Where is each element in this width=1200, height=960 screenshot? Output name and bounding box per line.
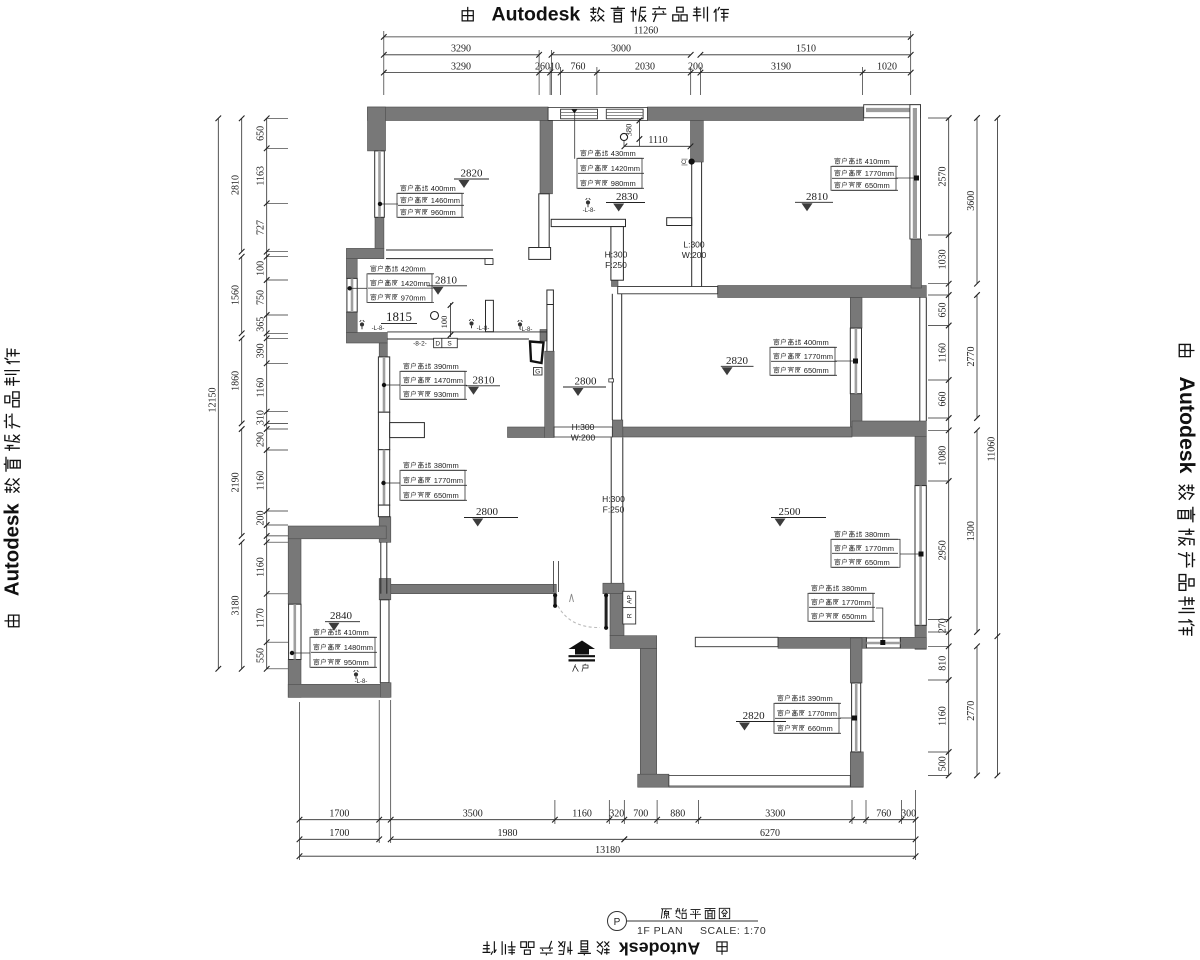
svg-text:390mm: 390mm <box>434 362 459 371</box>
svg-text:-8-2-: -8-2- <box>413 341 427 348</box>
svg-text:13180: 13180 <box>595 845 620 856</box>
svg-text:12150: 12150 <box>207 388 218 413</box>
svg-text:3190: 3190 <box>771 61 791 72</box>
svg-text:380mm: 380mm <box>434 461 459 470</box>
svg-text:-L-8-: -L-8- <box>477 326 490 332</box>
svg-text:11060: 11060 <box>986 437 997 462</box>
svg-text:1770mm: 1770mm <box>842 598 871 607</box>
svg-text:2950: 2950 <box>938 540 949 560</box>
svg-text:S: S <box>447 341 452 348</box>
svg-text:1300: 1300 <box>966 521 977 541</box>
svg-text:|C|: |C| <box>682 158 688 166</box>
svg-text:1770mm: 1770mm <box>434 476 463 485</box>
svg-text:400mm: 400mm <box>804 338 829 347</box>
svg-text:270: 270 <box>938 618 949 633</box>
svg-text:650: 650 <box>938 303 949 318</box>
svg-text:-L-8-: -L-8- <box>355 679 368 685</box>
svg-text:950mm: 950mm <box>344 658 369 667</box>
svg-text:390: 390 <box>256 343 267 358</box>
svg-text:1160: 1160 <box>256 471 267 491</box>
svg-text:760: 760 <box>876 808 891 819</box>
svg-text:2810: 2810 <box>806 191 829 203</box>
svg-text:1560: 1560 <box>231 285 242 305</box>
svg-text:750: 750 <box>256 290 267 305</box>
svg-text:AP: AP <box>627 595 634 604</box>
svg-text:660mm: 660mm <box>808 724 833 733</box>
svg-text:310: 310 <box>256 410 267 425</box>
svg-text:L:300: L:300 <box>683 240 705 250</box>
svg-text:3180: 3180 <box>231 596 242 616</box>
svg-text:2840: 2840 <box>330 610 353 622</box>
svg-text:365: 365 <box>256 317 267 332</box>
svg-text:390mm: 390mm <box>808 694 833 703</box>
svg-text:650mm: 650mm <box>804 366 829 375</box>
svg-text:2500: 2500 <box>779 506 802 518</box>
svg-text:3000: 3000 <box>611 44 631 55</box>
svg-text:290: 290 <box>256 432 267 447</box>
svg-text:1770mm: 1770mm <box>865 544 894 553</box>
svg-text:500: 500 <box>938 756 949 771</box>
svg-text:420mm: 420mm <box>401 265 426 274</box>
svg-text:880: 880 <box>670 808 685 819</box>
svg-text:1770mm: 1770mm <box>804 352 833 361</box>
svg-text:H:300: H:300 <box>605 250 628 260</box>
svg-text:1030: 1030 <box>938 249 949 269</box>
svg-text:1980: 1980 <box>498 828 518 839</box>
svg-text:2810: 2810 <box>231 175 242 195</box>
svg-text:W:200: W:200 <box>682 250 707 260</box>
svg-text:2820: 2820 <box>726 355 749 367</box>
svg-text:1770mm: 1770mm <box>808 709 837 718</box>
svg-text:-L-8-: -L-8- <box>520 327 533 333</box>
svg-text:3290: 3290 <box>451 61 471 72</box>
svg-text:1F PLAN: 1F PLAN <box>637 925 683 937</box>
svg-text:1163: 1163 <box>256 166 267 186</box>
svg-text:650mm: 650mm <box>842 612 867 621</box>
svg-text:2810: 2810 <box>435 274 458 286</box>
svg-text:3500: 3500 <box>463 808 483 819</box>
svg-text:1160: 1160 <box>572 808 592 819</box>
svg-text:-L-8-: -L-8- <box>372 326 385 332</box>
svg-text:410mm: 410mm <box>344 628 369 637</box>
svg-text:200: 200 <box>256 511 267 526</box>
svg-text:11260: 11260 <box>634 26 659 37</box>
svg-text:F:250: F:250 <box>603 505 625 515</box>
svg-text:970mm: 970mm <box>401 293 426 302</box>
svg-text:380mm: 380mm <box>842 584 867 593</box>
svg-text:2820: 2820 <box>743 710 766 722</box>
svg-text:Autodesk: Autodesk <box>492 3 581 25</box>
svg-text:2030: 2030 <box>635 61 655 72</box>
svg-text:2570: 2570 <box>938 167 949 187</box>
svg-text:F:250: F:250 <box>605 260 627 270</box>
svg-text:Autodesk: Autodesk <box>2 503 24 596</box>
svg-text:1420mm: 1420mm <box>401 279 430 288</box>
svg-text:550: 550 <box>256 648 267 663</box>
svg-text:Autodesk: Autodesk <box>1175 377 1199 474</box>
svg-text:1170: 1170 <box>256 608 267 628</box>
svg-text:2190: 2190 <box>231 472 242 492</box>
svg-text:1770mm: 1770mm <box>865 169 894 178</box>
svg-text:1110: 1110 <box>648 135 667 146</box>
svg-text:1460mm: 1460mm <box>431 196 460 205</box>
svg-text:960mm: 960mm <box>431 208 456 217</box>
svg-text:700: 700 <box>633 808 648 819</box>
svg-text:660: 660 <box>938 392 949 407</box>
svg-text:2810: 2810 <box>473 374 496 386</box>
svg-text:320: 320 <box>609 808 624 819</box>
svg-text:1160: 1160 <box>938 706 949 726</box>
svg-text:400mm: 400mm <box>431 184 456 193</box>
svg-text:H:300: H:300 <box>572 422 595 432</box>
svg-text:650mm: 650mm <box>865 558 890 567</box>
svg-text:1815: 1815 <box>386 309 412 324</box>
svg-text:3290: 3290 <box>451 44 471 55</box>
svg-text:H:300: H:300 <box>602 494 625 504</box>
svg-text:100: 100 <box>256 261 267 276</box>
svg-text:1510: 1510 <box>796 44 816 55</box>
svg-text:P: P <box>614 917 621 928</box>
svg-text:380mm: 380mm <box>865 530 890 539</box>
svg-text:2830: 2830 <box>616 191 639 203</box>
svg-text:2800: 2800 <box>476 506 499 518</box>
svg-text:R: R <box>627 613 634 618</box>
svg-text:650mm: 650mm <box>434 491 459 500</box>
svg-text:1480mm: 1480mm <box>344 643 373 652</box>
svg-text:G: G <box>535 369 540 376</box>
svg-text:W:200: W:200 <box>571 433 596 443</box>
svg-text:2820: 2820 <box>461 168 484 180</box>
svg-text:760: 760 <box>571 61 586 72</box>
svg-text:810: 810 <box>938 656 949 671</box>
svg-text:300: 300 <box>901 808 916 819</box>
svg-text:1700: 1700 <box>329 828 349 839</box>
svg-text:650: 650 <box>256 126 267 141</box>
svg-text:1020: 1020 <box>877 61 897 72</box>
svg-text:380: 380 <box>624 124 634 137</box>
svg-text:930mm: 930mm <box>434 390 459 399</box>
svg-text:3300: 3300 <box>765 808 785 819</box>
svg-text:1080: 1080 <box>938 446 949 466</box>
svg-text:1420mm: 1420mm <box>611 164 640 173</box>
svg-text:650mm: 650mm <box>865 181 890 190</box>
svg-text:1160: 1160 <box>256 378 267 398</box>
svg-text:3600: 3600 <box>966 191 977 211</box>
svg-text:D: D <box>435 341 440 348</box>
svg-text:Autodesk: Autodesk <box>619 938 700 958</box>
svg-text:1700: 1700 <box>329 808 349 819</box>
svg-text:100: 100 <box>439 316 449 329</box>
svg-text:410mm: 410mm <box>865 157 890 166</box>
svg-text:-L-8-: -L-8- <box>583 208 596 214</box>
svg-text:6270: 6270 <box>760 828 780 839</box>
svg-text:1160: 1160 <box>938 343 949 363</box>
svg-text:2770: 2770 <box>966 347 977 367</box>
svg-text:2770: 2770 <box>966 701 977 721</box>
svg-text:1860: 1860 <box>231 371 242 391</box>
svg-text:2800: 2800 <box>575 376 598 388</box>
svg-text:1160: 1160 <box>256 557 267 577</box>
svg-text:SCALE: 1:70: SCALE: 1:70 <box>700 925 766 937</box>
svg-text:430mm: 430mm <box>611 149 636 158</box>
svg-text:1470mm: 1470mm <box>434 376 463 385</box>
svg-text:260: 260 <box>535 61 550 72</box>
svg-text:980mm: 980mm <box>611 179 636 188</box>
svg-text:727: 727 <box>256 220 267 235</box>
